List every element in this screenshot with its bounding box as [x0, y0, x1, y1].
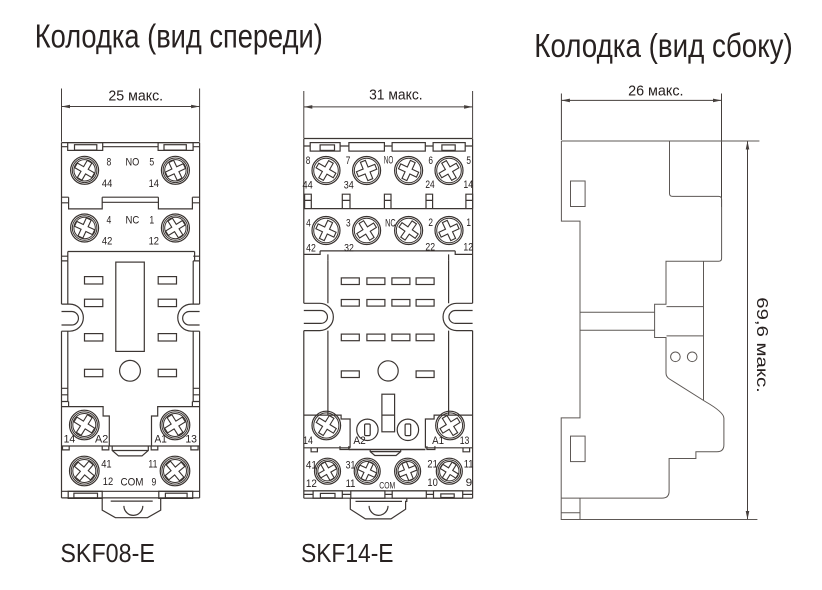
svg-text:12: 12	[463, 242, 473, 254]
svg-text:A2: A2	[353, 435, 365, 447]
svg-text:44: 44	[303, 180, 313, 192]
svg-text:SKF14-E: SKF14-E	[301, 538, 394, 568]
svg-text:14: 14	[303, 435, 313, 447]
svg-text:41: 41	[101, 459, 111, 471]
svg-text:3: 3	[346, 218, 351, 230]
svg-text:11: 11	[464, 459, 474, 471]
svg-text:12: 12	[306, 478, 317, 490]
svg-text:NC: NC	[385, 218, 396, 230]
svg-text:14: 14	[64, 434, 76, 446]
svg-text:Колодка (вид спереди): Колодка (вид спереди)	[35, 17, 323, 54]
svg-text:9: 9	[152, 476, 157, 488]
svg-text:5: 5	[149, 156, 154, 168]
svg-text:1: 1	[466, 217, 471, 229]
svg-text:Колодка (вид сбоку): Колодка (вид сбоку)	[534, 27, 793, 64]
svg-text:1: 1	[149, 214, 154, 226]
svg-text:7: 7	[346, 155, 351, 167]
svg-text:11: 11	[148, 459, 157, 471]
svg-text:NO: NO	[384, 155, 394, 167]
svg-text:31 макс.: 31 макс.	[369, 87, 423, 104]
svg-text:4: 4	[306, 218, 311, 230]
svg-text:8: 8	[107, 156, 112, 168]
svg-text:25 макс.: 25 макс.	[108, 88, 163, 105]
svg-text:13: 13	[185, 434, 197, 446]
svg-text:42: 42	[102, 236, 112, 248]
svg-text:SKF08-E: SKF08-E	[60, 538, 154, 568]
svg-text:A1: A1	[155, 434, 167, 446]
svg-text:A2: A2	[95, 434, 108, 446]
svg-text:2: 2	[428, 217, 433, 229]
svg-text:12: 12	[103, 476, 113, 488]
svg-text:12: 12	[149, 236, 159, 248]
svg-text:21: 21	[427, 459, 437, 471]
svg-text:14: 14	[149, 178, 159, 190]
svg-text:13: 13	[460, 435, 470, 447]
svg-text:COM: COM	[379, 481, 395, 491]
svg-text:34: 34	[344, 180, 354, 192]
svg-text:42: 42	[306, 242, 316, 254]
svg-text:11: 11	[346, 478, 356, 490]
svg-text:9: 9	[466, 477, 473, 489]
svg-text:14: 14	[463, 179, 473, 191]
svg-text:26 макс.: 26 макс.	[628, 83, 683, 100]
svg-text:A1: A1	[432, 435, 444, 447]
svg-text:COM: COM	[121, 476, 144, 488]
svg-text:8: 8	[306, 155, 311, 167]
svg-text:32: 32	[344, 242, 354, 254]
svg-text:NC: NC	[126, 214, 140, 226]
svg-text:4: 4	[107, 214, 112, 226]
svg-text:31: 31	[346, 459, 356, 471]
svg-text:44: 44	[102, 178, 112, 190]
svg-text:NO: NO	[126, 156, 140, 168]
svg-text:10: 10	[427, 477, 437, 489]
svg-text:5: 5	[466, 155, 471, 167]
svg-text:24: 24	[425, 179, 434, 191]
svg-text:41: 41	[306, 459, 317, 471]
svg-text:6: 6	[428, 155, 433, 167]
svg-text:69,6 макс.: 69,6 макс.	[753, 297, 770, 393]
svg-text:22: 22	[425, 242, 435, 254]
